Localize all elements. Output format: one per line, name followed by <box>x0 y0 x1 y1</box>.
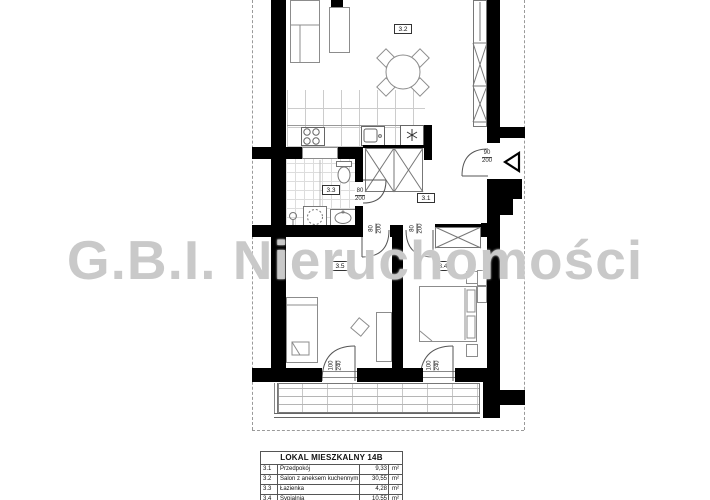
toilet-tank <box>336 161 352 167</box>
wall <box>271 0 286 382</box>
dim-window-left: 100240 <box>329 354 344 378</box>
wall <box>424 125 432 160</box>
wall-cabinet <box>302 147 338 159</box>
watermark: G.B.I. Nieruchomości <box>0 231 710 289</box>
property-line-left <box>252 0 253 430</box>
wall <box>487 199 513 215</box>
wall <box>487 0 500 143</box>
area-table: LOKAL MIESZKALNY 14B 3.1 Przedpokój 9,33… <box>260 451 403 500</box>
wall <box>487 179 522 199</box>
wall <box>271 147 302 159</box>
fridge <box>400 125 424 146</box>
wall <box>331 0 343 7</box>
wall <box>252 147 271 159</box>
room-label-bath: 3.3 <box>322 185 340 195</box>
wardrobe-hall <box>365 148 423 192</box>
dim-bath-door: 80200 <box>352 188 368 203</box>
table-row: 3.2 Salon z aneksem kuchennym 30,55 m² <box>261 475 402 485</box>
wall <box>487 127 525 138</box>
wall <box>355 147 363 182</box>
nightstand-bottom <box>466 344 478 357</box>
table-row: 3.1 Przedpokój 9,33 m² <box>261 465 402 475</box>
stove <box>301 127 325 146</box>
desk-chair <box>351 318 369 336</box>
table-row: 3.4 Sypialnia 10,55 m² <box>261 495 402 500</box>
balcony-pavers <box>277 383 480 413</box>
balcony-edge <box>274 413 480 418</box>
wall <box>483 368 500 418</box>
sofa <box>290 0 320 63</box>
wall <box>435 224 483 227</box>
wall <box>357 368 423 382</box>
property-line-right <box>524 0 525 430</box>
dim-window-right: 100240 <box>427 354 442 378</box>
dim-entrance-door: 90200 <box>477 150 497 165</box>
wall <box>363 145 424 148</box>
desk <box>376 312 392 362</box>
entrance-triangle-icon <box>505 153 519 171</box>
armchair <box>329 7 350 53</box>
floor-plan: 3.2 3.1 3.3 3.5 3.4 80200 90200 80200 80… <box>0 0 710 500</box>
table-row: 3.3 Łazienka 4,28 m² <box>261 485 402 495</box>
kitchen-sink <box>361 126 385 146</box>
wardrobe-living <box>473 0 487 127</box>
wall <box>252 368 322 382</box>
bed-double <box>419 286 477 342</box>
area-table-title: LOKAL MIESZKALNY 14B <box>261 452 402 465</box>
bed-single <box>286 297 318 363</box>
balcony-side-edge <box>274 383 279 413</box>
property-line-bottom <box>252 430 524 431</box>
wall <box>455 368 483 382</box>
wall <box>500 390 525 405</box>
room-label-living: 3.2 <box>394 24 412 34</box>
room-label-hall: 3.1 <box>417 193 435 203</box>
